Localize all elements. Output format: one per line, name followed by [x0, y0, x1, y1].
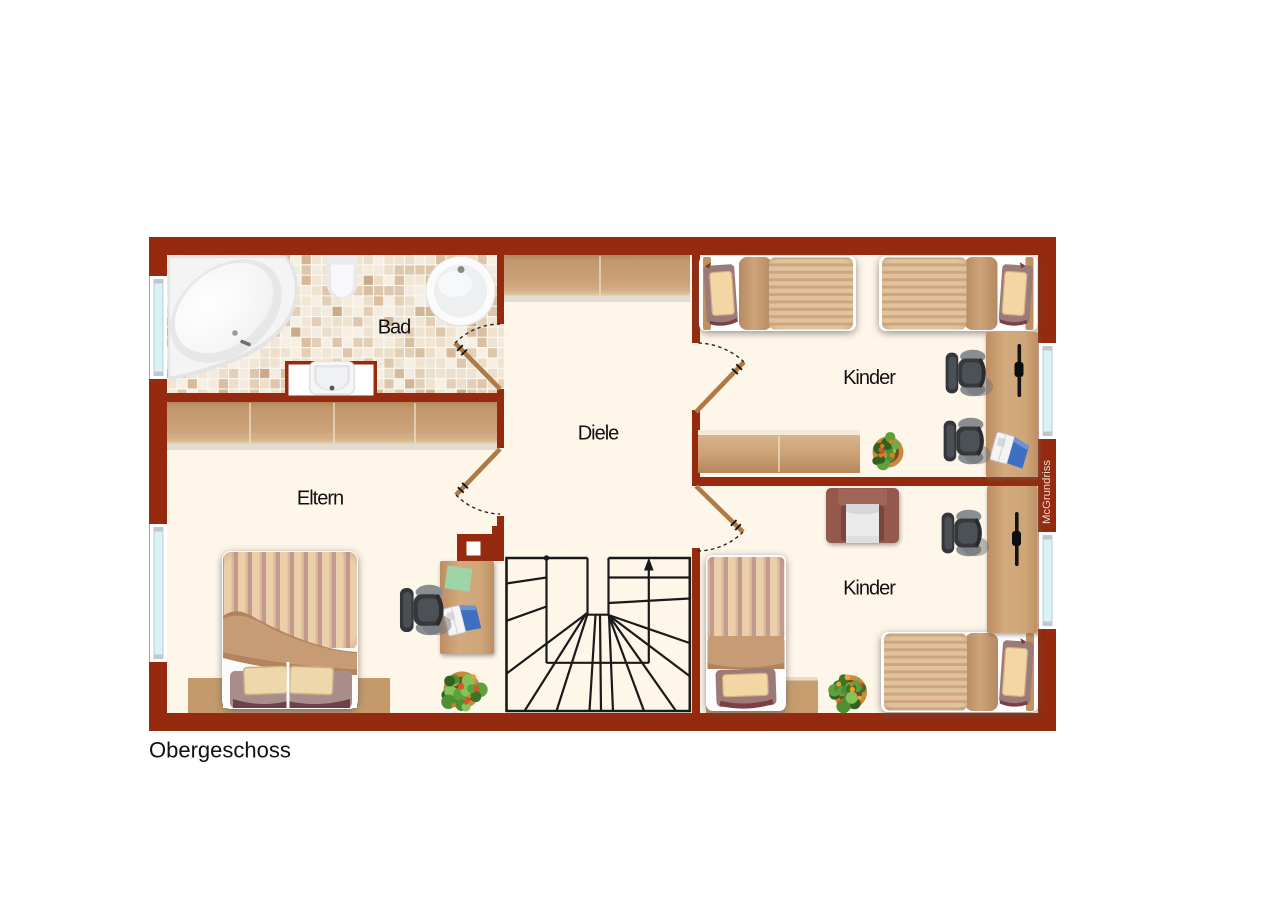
svg-text:Kinder: Kinder — [843, 578, 896, 600]
svg-text:Diele: Diele — [578, 422, 619, 444]
svg-text:Obergeschoss: Obergeschoss — [149, 738, 291, 763]
svg-text:McGrundriss: McGrundriss — [1041, 460, 1053, 524]
svg-text:Bad: Bad — [378, 316, 411, 338]
svg-text:Eltern: Eltern — [297, 487, 343, 509]
svg-text:Kinder: Kinder — [843, 367, 896, 389]
